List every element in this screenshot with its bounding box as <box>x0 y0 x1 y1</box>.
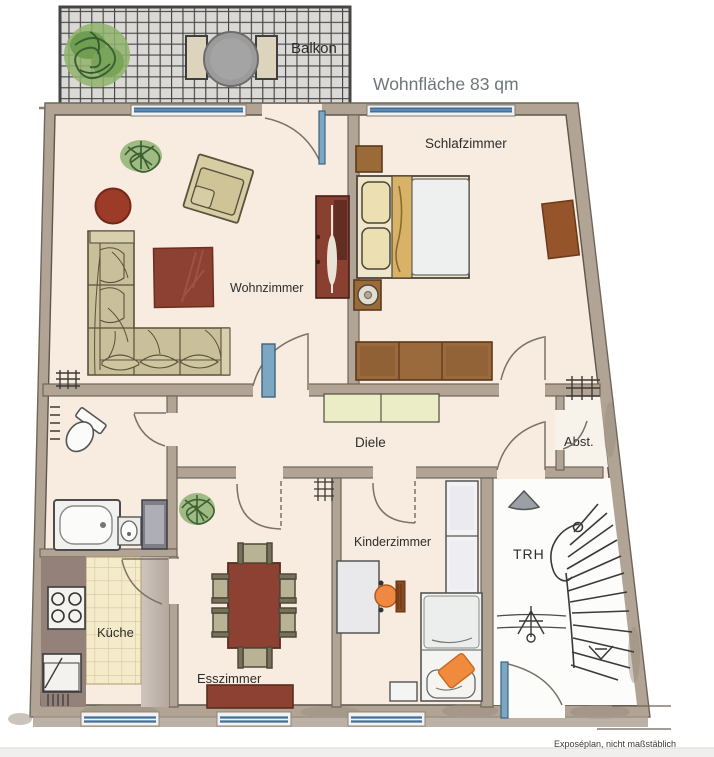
svg-text:Schlafzimmer: Schlafzimmer <box>425 136 507 151</box>
svg-text:Exposéplan, nicht maßstäblich: Exposéplan, nicht maßstäblich <box>554 739 676 749</box>
svg-text:Esszimmer: Esszimmer <box>197 671 262 686</box>
svg-text:TRH: TRH <box>513 546 545 562</box>
svg-text:Wohnzimmer: Wohnzimmer <box>230 281 303 295</box>
svg-text:Balkon: Balkon <box>291 40 337 57</box>
svg-text:Kinderzimmer: Kinderzimmer <box>354 535 431 549</box>
svg-text:Küche: Küche <box>97 625 134 640</box>
svg-text:Wohnfläche 83 qm: Wohnfläche 83 qm <box>373 74 519 94</box>
svg-text:Diele: Diele <box>355 435 386 450</box>
